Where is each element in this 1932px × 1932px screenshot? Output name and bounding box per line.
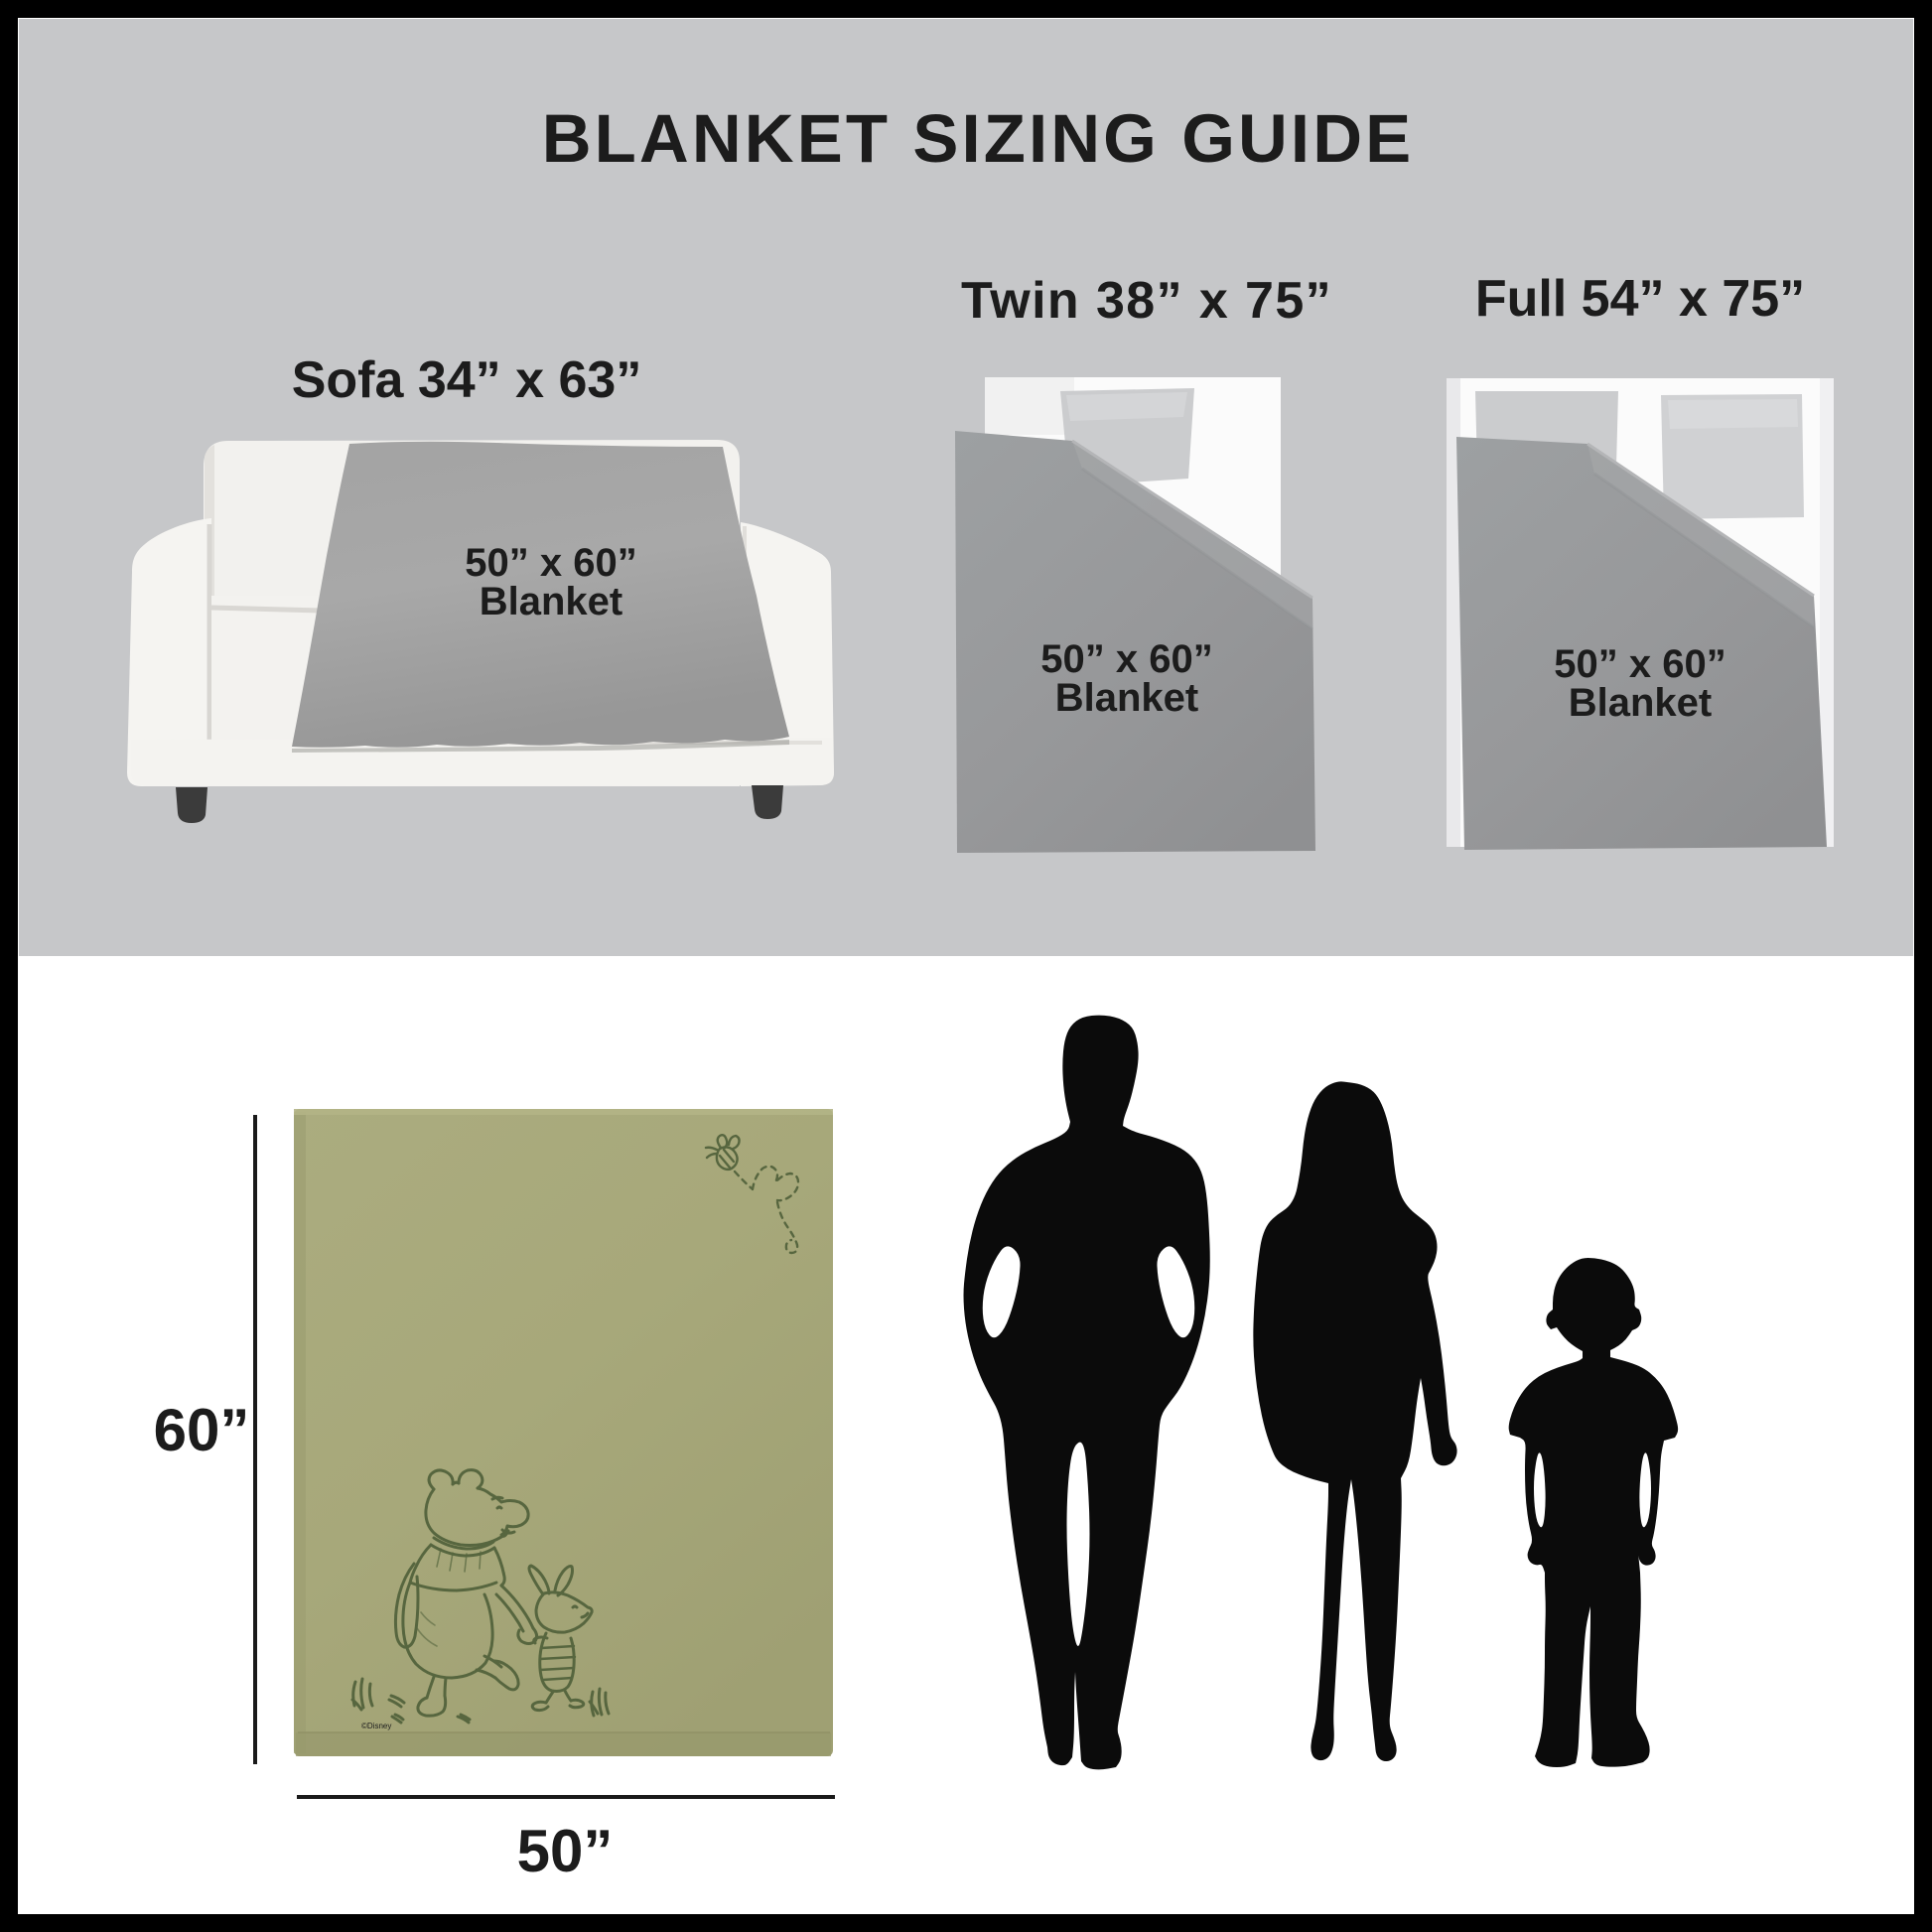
svg-text:Twin 38” x 75”: Twin 38” x 75” (961, 272, 1332, 330)
svg-text:50”: 50” (517, 1818, 614, 1884)
svg-text:Blanket: Blanket (480, 580, 623, 623)
svg-text:50” x 60”: 50” x 60” (1554, 642, 1725, 686)
svg-text:Full 54” x 75”: Full 54” x 75” (1475, 270, 1805, 328)
svg-text:60”: 60” (154, 1397, 250, 1463)
svg-text:BLANKET SIZING GUIDE: BLANKET SIZING GUIDE (542, 100, 1415, 177)
svg-text:50” x 60”: 50” x 60” (465, 541, 636, 585)
svg-text:Blanket: Blanket (1569, 681, 1713, 725)
svg-text:©Disney: ©Disney (361, 1722, 391, 1730)
svg-text:Blanket: Blanket (1055, 676, 1199, 720)
svg-text:Sofa 34” x 63”: Sofa 34” x 63” (292, 351, 642, 409)
svg-text:50” x 60”: 50” x 60” (1040, 637, 1212, 681)
